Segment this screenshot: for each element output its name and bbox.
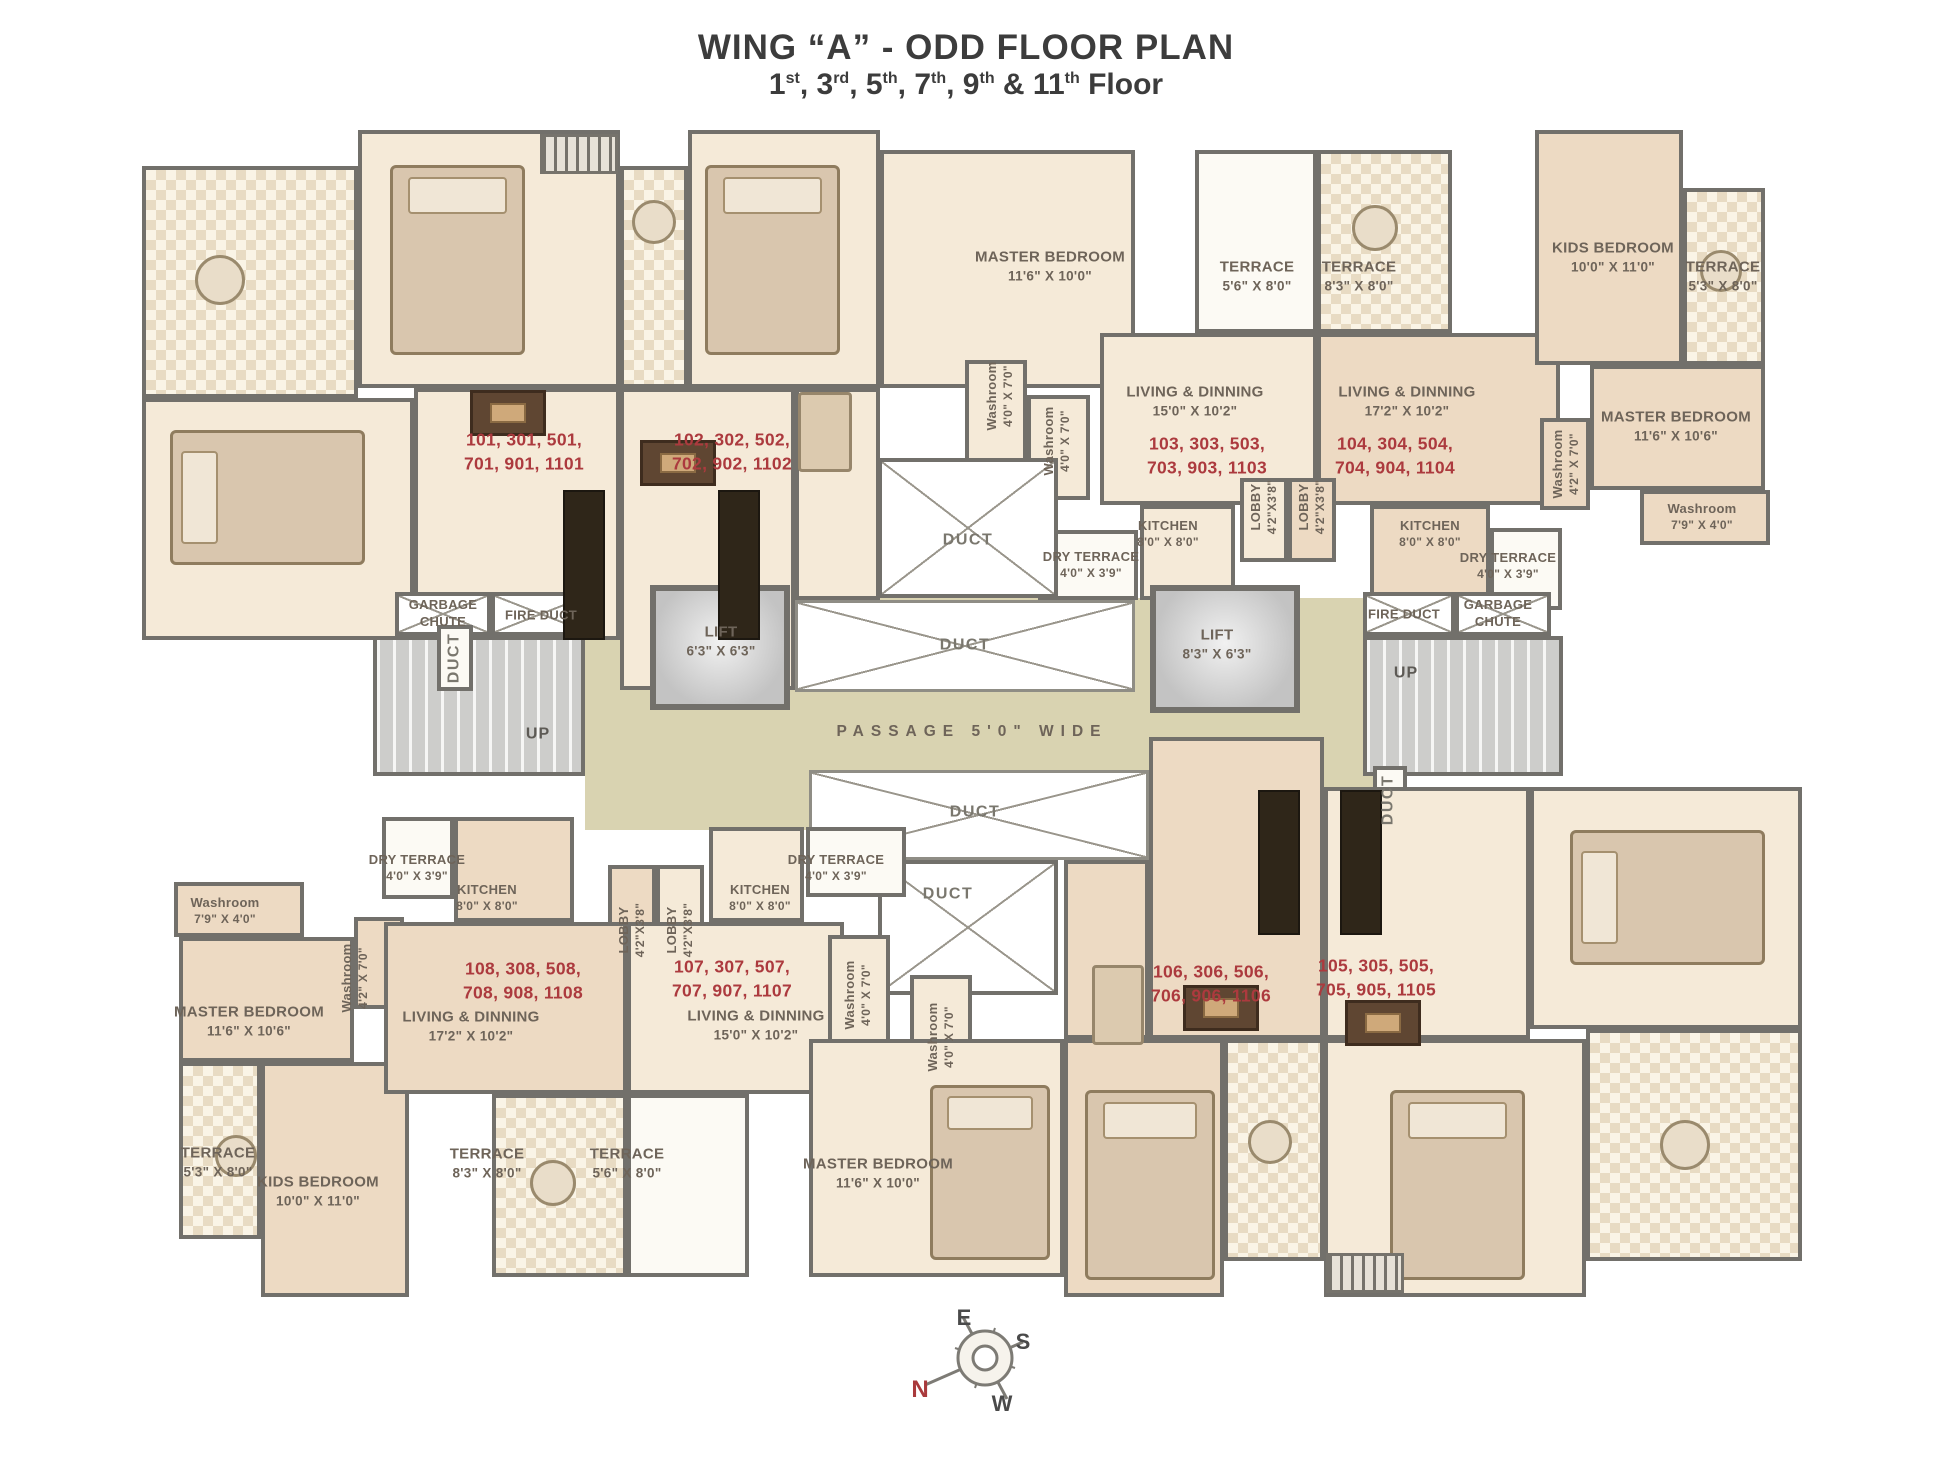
compass-west: W	[992, 1391, 1013, 1417]
label-master-bedroom-103: MASTER BEDROOM11'6" X 10'0"	[975, 247, 1125, 284]
label-living-104: LIVING & DINNING17'2" X 10'2"	[1338, 382, 1475, 419]
label-washroom-107b: Washroom4'0" X 7'0"	[925, 1002, 957, 1071]
staircase-right	[1363, 636, 1563, 776]
label-passage: PASSAGE 5'0" WIDE	[836, 722, 1107, 742]
compass-rose-icon	[900, 1273, 1070, 1443]
duct-box-top	[878, 458, 1058, 598]
label-lobby-103: LOBBY4'2"X3'8"	[1248, 480, 1280, 535]
label-living-107: LIVING & DINNING15'0" X 10'2"	[687, 1006, 824, 1043]
label-master-bedroom-104: MASTER BEDROOM11'6" X 10'6"	[1601, 407, 1751, 444]
label-washroom-104-vert: Washroom4'2" X 7'0"	[1550, 429, 1582, 498]
bed-icon	[1570, 830, 1765, 965]
label-lobby-107: LOBBY4'2"X3'8"	[664, 903, 696, 958]
label-washroom-108-small: Washroom7'9" X 4'0"	[190, 895, 259, 927]
label-dry-terrace-103: DRY TERRACE4'0" X 3'9"	[1043, 549, 1139, 581]
label-washroom-104-small: Washroom7'9" X 4'0"	[1667, 501, 1736, 533]
label-terrace-83-bottom: TERRACE8'3" X 8'0"	[450, 1144, 525, 1181]
label-unit-104: 104, 304, 504,704, 904, 1104	[1335, 432, 1455, 479]
label-terrace-56-bottom: TERRACE5'6" X 8'0"	[590, 1144, 665, 1181]
bed-icon	[1085, 1090, 1215, 1280]
label-terrace-56-top: TERRACE5'6" X 8'0"	[1220, 257, 1295, 294]
label-unit-107: 107, 307, 507,707, 907, 1107	[672, 955, 792, 1002]
label-kitchen-107: KITCHEN8'0" X 8'0"	[729, 882, 791, 914]
round-table-icon	[1248, 1120, 1292, 1164]
round-table-icon	[632, 200, 676, 244]
label-terrace-53-bottom: TERRACE5'3" X 8'0"	[181, 1143, 256, 1180]
label-duct-strip-lower: DUCT	[950, 803, 1000, 824]
label-kids-bedroom-108: KIDS BEDROOM10'0" X 11'0"	[257, 1172, 379, 1209]
label-washroom-103b: Washroom4'0" X 7'0"	[1041, 406, 1073, 475]
round-table-icon	[530, 1160, 576, 1206]
label-fire-duct-right: FIRE DUCT	[1368, 607, 1440, 624]
compass-north: N	[911, 1376, 928, 1404]
label-unit-102: 102, 302, 502,702, 902, 1102	[672, 428, 792, 475]
label-unit-101: 101, 301, 501,701, 901, 1101	[464, 428, 584, 475]
staircase-left	[373, 636, 585, 776]
label-kids-bedroom-104: KIDS BEDROOM10'0" X 11'0"	[1552, 238, 1674, 275]
bed-icon	[1390, 1090, 1525, 1280]
round-table-icon	[1660, 1120, 1710, 1170]
compass-east: E	[957, 1305, 972, 1331]
label-washroom-103a: Washroom4'0" X 7'0"	[984, 361, 1016, 430]
label-terrace-83-top: TERRACE8'3" X 8'0"	[1322, 257, 1397, 294]
label-kitchen-108: KITCHEN8'0" X 8'0"	[456, 882, 518, 914]
plan-subtitle: 1st, 3rd, 5th, 7th, 9th & 11th Floor	[769, 68, 1163, 102]
label-kitchen-104: KITCHEN8'0" X 8'0"	[1399, 518, 1461, 550]
label-garbage-chute-right: GARBAGECHUTE	[1464, 597, 1533, 631]
bed-icon	[170, 430, 365, 565]
round-table-icon	[1352, 205, 1398, 251]
room-terrace-56-top	[1195, 150, 1317, 333]
label-duct-vertical-right: DUCT	[1379, 775, 1400, 825]
label-unit-105: 105, 305, 505,705, 905, 1105	[1316, 954, 1436, 1001]
bed-icon	[705, 165, 840, 355]
label-duct-vertical-left: DUCT	[445, 633, 466, 683]
label-up-left: UP	[526, 725, 550, 746]
kitchen-counter-icon	[1258, 790, 1300, 935]
room-master-bedroom-108	[179, 937, 354, 1062]
wardrobe-icon	[540, 134, 618, 174]
label-master-bedroom-107: MASTER BEDROOM11'6" X 10'0"	[803, 1154, 953, 1191]
label-fire-duct-left: FIRE DUCT	[505, 608, 577, 625]
round-table-icon	[195, 255, 245, 305]
label-washroom-108-vert: Washroom4'2" X 7'0"	[339, 943, 371, 1012]
label-unit-106: 106, 306, 506,706, 906, 1106	[1151, 960, 1271, 1007]
label-dry-terrace-104: DRY TERRACE4'0" X 3'9"	[1460, 550, 1556, 582]
bed-icon	[390, 165, 525, 355]
label-living-103: LIVING & DINNING15'0" X 10'2"	[1126, 382, 1263, 419]
room-terrace-101	[142, 166, 358, 398]
label-master-bedroom-108: MASTER BEDROOM11'6" X 10'6"	[174, 1002, 324, 1039]
label-up-right: UP	[1394, 664, 1418, 685]
label-kitchen-103: KITCHEN8'0" X 8'0"	[1137, 518, 1199, 550]
label-dry-terrace-108: DRY TERRACE4'0" X 3'9"	[369, 852, 465, 884]
label-washroom-107a: Washroom4'0" X 7'0"	[842, 960, 874, 1029]
label-unit-108: 108, 308, 508,708, 908, 1108	[463, 957, 583, 1004]
label-terrace-53-top: TERRACE5'3" X 8'0"	[1686, 257, 1761, 294]
kitchen-counter-icon	[718, 490, 760, 640]
label-duct-top: DUCT	[943, 531, 993, 552]
label-lobby-108: LOBBY4'2"X3'8"	[616, 903, 648, 958]
label-lift-right: LIFT8'3" X 6'3"	[1182, 625, 1251, 662]
dining-table-icon	[798, 392, 852, 472]
room-terrace-56-bottom	[627, 1094, 749, 1277]
floor-plan: WING “A” - ODD FLOOR PLAN 1st, 3rd, 5th,…	[0, 0, 1944, 1458]
label-duct-strip-upper: DUCT	[940, 636, 990, 657]
label-dry-terrace-107: DRY TERRACE4'0" X 3'9"	[788, 852, 884, 884]
kitchen-counter-icon	[1340, 790, 1382, 935]
compass-south: S	[1016, 1329, 1031, 1355]
plan-title: WING “A” - ODD FLOOR PLAN	[698, 28, 1234, 68]
label-duct-bottom: DUCT	[923, 885, 973, 906]
wardrobe-icon	[1326, 1253, 1404, 1293]
label-lobby-104: LOBBY4'2"X3'8"	[1296, 480, 1328, 535]
label-unit-103: 103, 303, 503,703, 903, 1103	[1147, 432, 1267, 479]
label-living-108: LIVING & DINNING17'2" X 10'2"	[402, 1007, 539, 1044]
label-lift-left: LIFT6'3" X 6'3"	[686, 622, 755, 659]
rug-icon	[1345, 1000, 1421, 1046]
dining-table-icon	[1092, 965, 1144, 1045]
label-garbage-chute-left: GARBAGECHUTE	[409, 597, 478, 631]
